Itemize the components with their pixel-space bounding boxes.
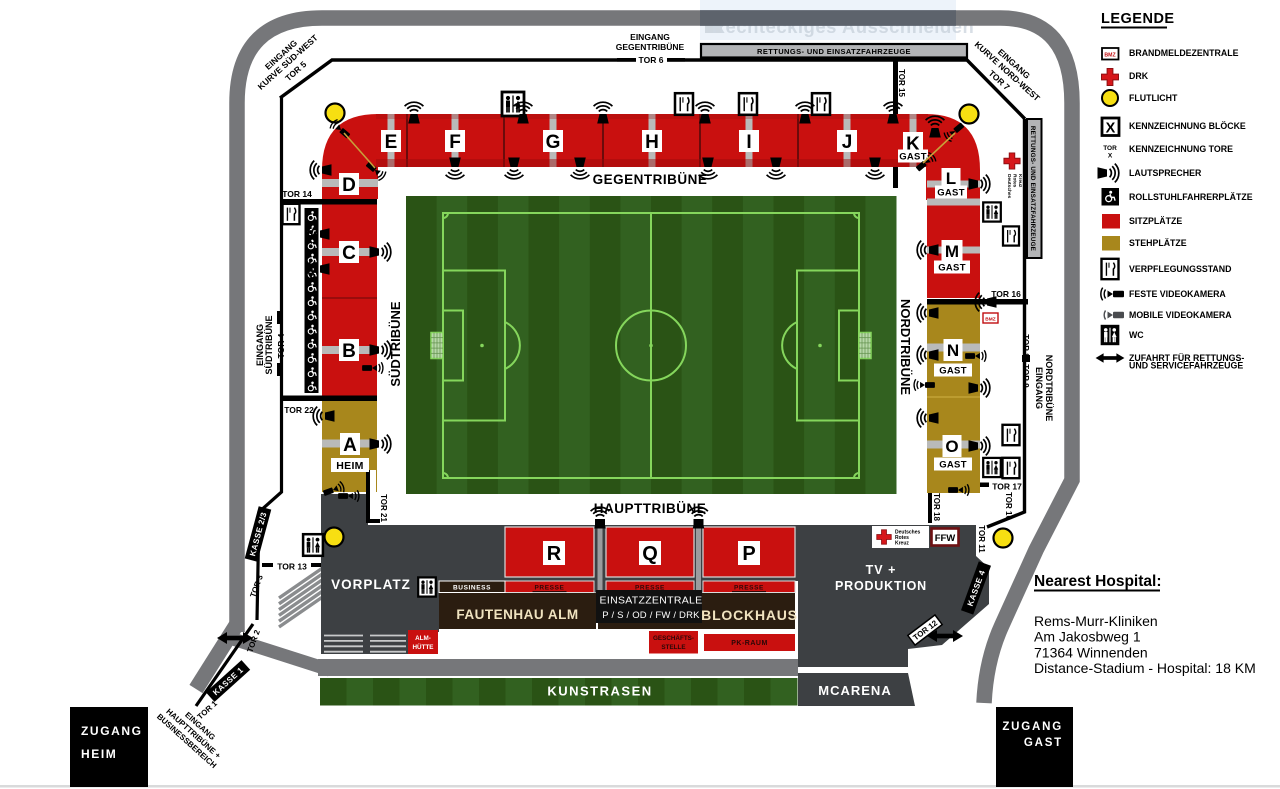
svg-text:TOR 22: TOR 22 <box>284 405 314 415</box>
svg-text:P: P <box>742 543 755 565</box>
svg-text:J: J <box>842 132 853 153</box>
svg-text:TOR 6: TOR 6 <box>639 55 664 65</box>
svg-text:TOR 11: TOR 11 <box>977 525 986 553</box>
svg-text:BRANDMELDEZENTRALE: BRANDMELDEZENTRALE <box>1129 48 1239 58</box>
svg-text:TOR 8: TOR 8 <box>1021 334 1030 358</box>
svg-text:Kreuz: Kreuz <box>895 541 909 547</box>
svg-text:B: B <box>342 341 356 362</box>
svg-text:GAST: GAST <box>937 188 965 199</box>
svg-text:SITZPLÄTZE: SITZPLÄTZE <box>1129 216 1182 226</box>
svg-text:NORDTRIBÜNE: NORDTRIBÜNE <box>898 299 913 395</box>
svg-text:Deutsches: Deutsches <box>1006 174 1012 199</box>
svg-text:TOR 18: TOR 18 <box>932 493 941 521</box>
svg-text:D: D <box>342 175 356 196</box>
svg-text:HÜTTE: HÜTTE <box>413 642 434 651</box>
svg-text:Am Jakosbweg 1: Am Jakosbweg 1 <box>1034 629 1141 645</box>
svg-text:Q: Q <box>642 543 658 565</box>
svg-text:VORPLATZ: VORPLATZ <box>331 577 411 592</box>
svg-text:M: M <box>945 242 959 261</box>
svg-text:GAST: GAST <box>938 263 966 274</box>
svg-text:RETTUNGS- UND EINSATZFAHRZEUGE: RETTUNGS- UND EINSATZFAHRZEUGE <box>1029 126 1036 251</box>
svg-text:H: H <box>645 132 659 153</box>
svg-text:E: E <box>385 132 398 153</box>
svg-text:ROLLSTUHLFAHRERPLÄTZE: ROLLSTUHLFAHRERPLÄTZE <box>1129 192 1253 202</box>
svg-text:HEIM: HEIM <box>81 747 117 761</box>
svg-text:BUSINESS: BUSINESS <box>453 585 491 592</box>
svg-text:BMZ: BMZ <box>1104 53 1116 59</box>
svg-text:TOR 17: TOR 17 <box>992 482 1022 492</box>
svg-text:TOR 13: TOR 13 <box>277 562 307 572</box>
svg-text:TV +: TV + <box>866 563 897 577</box>
svg-text:P / S / OD / FW / DRK: P / S / OD / FW / DRK <box>602 610 700 621</box>
svg-text:STELLE: STELLE <box>661 644 685 651</box>
svg-text:TOR 10: TOR 10 <box>1004 492 1013 520</box>
svg-text:PRODUKTION: PRODUKTION <box>835 579 927 593</box>
svg-text:Distance-Stadium - Hospital: 1: Distance-Stadium - Hospital: 18 KM <box>1034 660 1256 676</box>
svg-text:X: X <box>1108 153 1113 160</box>
svg-text:NORDTRIBÜNE: NORDTRIBÜNE <box>1044 355 1054 422</box>
svg-text:X: X <box>1106 121 1116 137</box>
svg-text:TOR: TOR <box>1103 145 1117 152</box>
svg-text:PRESSE: PRESSE <box>535 585 565 592</box>
svg-text:EINGANG: EINGANG <box>1034 367 1044 409</box>
svg-text:L: L <box>946 169 956 188</box>
svg-text:PRESSE: PRESSE <box>734 585 764 592</box>
svg-text:TOR 15: TOR 15 <box>897 69 906 97</box>
svg-text:HAUPTTRIBÜNE: HAUPTTRIBÜNE <box>594 501 707 516</box>
svg-text:TOR 14: TOR 14 <box>282 189 312 199</box>
svg-text:71364 Winnenden: 71364 Winnenden <box>1034 644 1148 660</box>
svg-text:MOBILE VIDEOKAMERA: MOBILE VIDEOKAMERA <box>1129 310 1232 320</box>
svg-text:TOR 21: TOR 21 <box>379 494 388 522</box>
svg-text:GEGENTRIBÜNE: GEGENTRIBÜNE <box>616 42 685 52</box>
svg-text:I: I <box>746 132 751 153</box>
svg-text:ZUGANG: ZUGANG <box>81 724 143 738</box>
svg-text:GAST: GAST <box>899 152 927 163</box>
svg-text:FAUTENHAU ALM: FAUTENHAU ALM <box>456 607 578 622</box>
svg-text:G: G <box>546 132 561 153</box>
svg-text:RETTUNGS- UND EINSATZFAHRZEUGE: RETTUNGS- UND EINSATZFAHRZEUGE <box>757 47 911 56</box>
svg-text:FFW: FFW <box>935 533 956 544</box>
svg-text:DRK: DRK <box>1129 71 1149 81</box>
svg-text:C: C <box>342 243 356 264</box>
svg-text:F: F <box>449 132 461 153</box>
svg-text:KUNSTRASEN: KUNSTRASEN <box>547 684 652 699</box>
svg-text:ALM-: ALM- <box>415 635 431 642</box>
svg-text:FLUTLICHT: FLUTLICHT <box>1129 93 1178 103</box>
svg-text:SÜDTRIBÜNE: SÜDTRIBÜNE <box>264 315 274 374</box>
svg-text:BMZ: BMZ <box>985 317 995 323</box>
svg-text:EINGANG: EINGANG <box>630 32 670 42</box>
svg-text:GEGENTRIBÜNE: GEGENTRIBÜNE <box>593 172 708 187</box>
svg-text:Nearest Hospital:: Nearest Hospital: <box>1034 573 1161 590</box>
svg-text:HEIM: HEIM <box>336 460 363 472</box>
svg-text:R: R <box>547 543 562 565</box>
svg-text:BLOCKHAUS: BLOCKHAUS <box>701 607 798 623</box>
svg-text:ZUGANG: ZUGANG <box>1002 721 1063 733</box>
svg-text:GAST: GAST <box>939 460 967 471</box>
svg-text:MCARENA: MCARENA <box>818 683 891 698</box>
svg-text:O: O <box>945 437 958 456</box>
svg-text:N: N <box>947 341 959 360</box>
svg-text:A: A <box>343 435 357 456</box>
svg-text:STEHPLÄTZE: STEHPLÄTZE <box>1129 238 1187 248</box>
svg-text:PK-RAUM: PK-RAUM <box>731 640 768 647</box>
svg-text:Rotes: Rotes <box>1011 174 1017 188</box>
svg-text:Kreuz: Kreuz <box>1017 174 1023 188</box>
svg-text:Rems-Murr-Kliniken: Rems-Murr-Kliniken <box>1034 613 1158 629</box>
svg-text:KENNZEICHNUNG TORE: KENNZEICHNUNG TORE <box>1129 144 1233 154</box>
svg-text:VERPFLEGUNGSSTAND: VERPFLEGUNGSSTAND <box>1129 264 1231 274</box>
svg-text:GAST: GAST <box>1024 737 1063 749</box>
svg-text:LAUTSPRECHER: LAUTSPRECHER <box>1129 168 1202 178</box>
svg-text:GESCHÄFTS-: GESCHÄFTS- <box>653 634 694 642</box>
svg-text:TOR 9: TOR 9 <box>1021 364 1030 388</box>
svg-text:KENNZEICHNUNG BLÖCKE: KENNZEICHNUNG BLÖCKE <box>1129 121 1246 131</box>
svg-text:LEGENDE: LEGENDE <box>1101 11 1175 27</box>
svg-text:GAST: GAST <box>939 366 967 377</box>
svg-text:UND SERVICEFAHRZEUGE: UND SERVICEFAHRZEUGE <box>1129 361 1243 371</box>
svg-text:FESTE VIDEOKAMERA: FESTE VIDEOKAMERA <box>1129 289 1226 299</box>
svg-text:WC: WC <box>1129 330 1144 340</box>
svg-text:TOR 4: TOR 4 <box>276 333 286 358</box>
svg-text:EINSATZZENTRALE: EINSATZZENTRALE <box>600 595 703 607</box>
